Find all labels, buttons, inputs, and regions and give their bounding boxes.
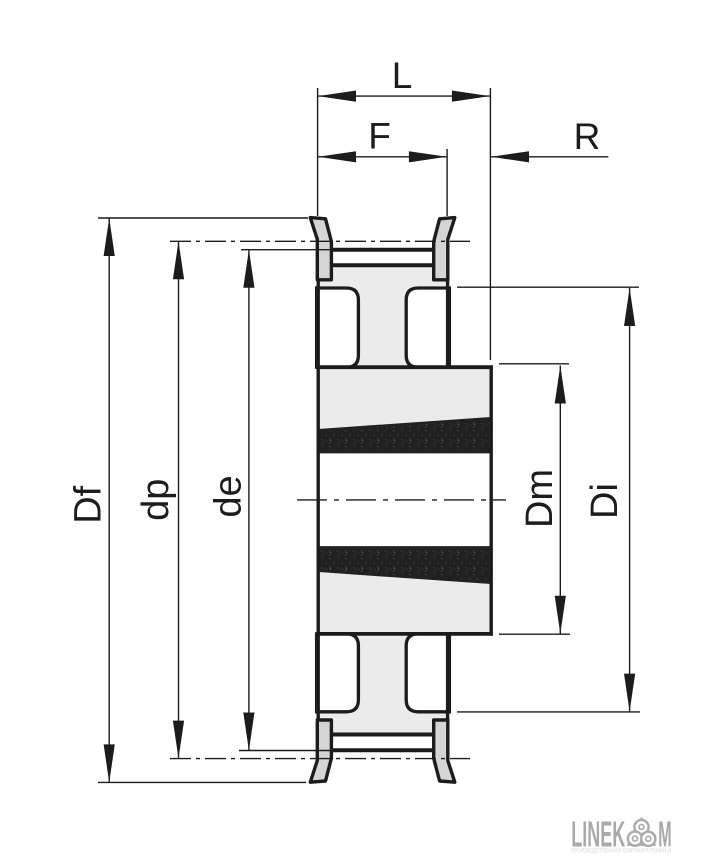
- svg-text:R: R: [574, 116, 601, 157]
- svg-text:F: F: [368, 115, 391, 156]
- svg-text:Di: Di: [584, 483, 626, 519]
- svg-text:Dm: Dm: [519, 469, 561, 528]
- svg-text:Df: Df: [68, 485, 110, 523]
- svg-text:L: L: [392, 55, 413, 96]
- svg-text:ПРОИЗВОДСТВЕННАЯ КОМПАНИЯ РЕМН: ПРОИЗВОДСТВЕННАЯ КОМПАНИЯ РЕМНИ И: [571, 848, 671, 854]
- svg-text:de: de: [207, 475, 249, 517]
- svg-text:dp: dp: [135, 479, 177, 521]
